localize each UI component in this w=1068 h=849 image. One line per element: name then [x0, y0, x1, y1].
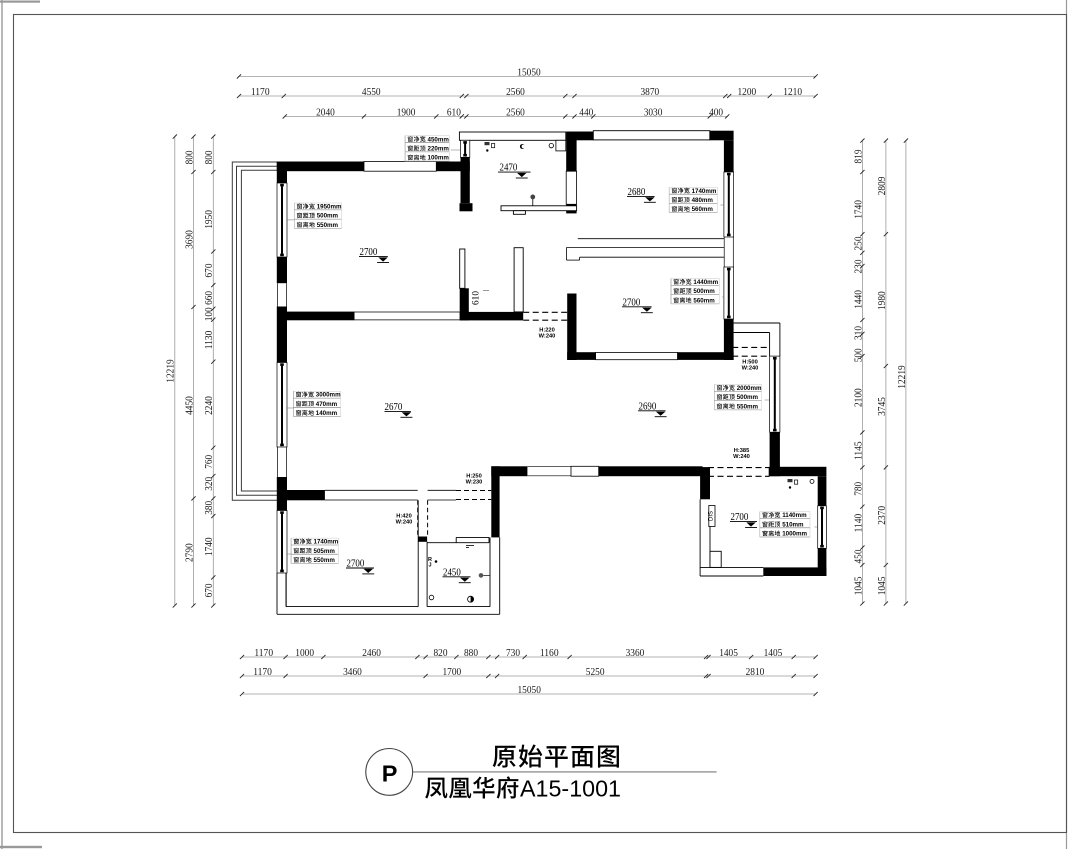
svg-text:4450: 4450 [184, 396, 195, 415]
svg-text:470mm: 470mm [316, 401, 338, 408]
svg-text:1440mm: 1440mm [693, 279, 718, 286]
svg-text:1900: 1900 [397, 107, 416, 118]
svg-text:1170: 1170 [254, 648, 273, 659]
svg-text:310: 310 [853, 326, 864, 340]
svg-text:480mm: 480mm [692, 197, 714, 204]
svg-text:230: 230 [853, 260, 864, 274]
svg-text:550mm: 550mm [314, 557, 336, 564]
svg-text:1405: 1405 [764, 648, 783, 659]
svg-text:670: 670 [204, 583, 215, 597]
svg-text:12219: 12219 [897, 365, 908, 388]
svg-text:800: 800 [184, 150, 195, 164]
svg-text:100: 100 [204, 307, 215, 321]
svg-text:660: 660 [204, 291, 215, 305]
svg-text:W:240: W:240 [742, 366, 759, 372]
svg-text:730: 730 [506, 648, 520, 659]
svg-text:3745: 3745 [877, 397, 888, 416]
svg-text:2810: 2810 [746, 667, 765, 678]
svg-text:670: 670 [204, 264, 215, 278]
svg-text:1950mm: 1950mm [317, 204, 342, 211]
svg-text:510mm: 510mm [782, 521, 804, 528]
svg-text:1740: 1740 [853, 200, 864, 219]
svg-text:1045: 1045 [853, 577, 864, 596]
svg-text:1980: 1980 [877, 291, 888, 310]
svg-text:P: P [382, 761, 398, 787]
svg-text:15050: 15050 [518, 685, 541, 696]
svg-text:12219: 12219 [166, 359, 177, 382]
svg-text:380: 380 [204, 501, 215, 515]
svg-text:320: 320 [204, 477, 215, 491]
svg-text:H:500: H:500 [742, 360, 758, 366]
svg-text:3360: 3360 [626, 648, 645, 659]
svg-text:140mm: 140mm [316, 410, 338, 417]
svg-text:500mm: 500mm [317, 213, 339, 220]
svg-text:500: 500 [853, 348, 864, 362]
svg-text:H:250: H:250 [466, 474, 482, 480]
svg-text:A15-1001: A15-1001 [520, 776, 621, 802]
svg-text:2790: 2790 [184, 543, 195, 562]
svg-text:500mm: 500mm [693, 288, 715, 295]
svg-text:2240: 2240 [204, 396, 215, 415]
svg-text:2560: 2560 [506, 87, 525, 98]
svg-text:W:240: W:240 [539, 334, 556, 340]
svg-text:1140: 1140 [853, 514, 864, 533]
svg-text:610: 610 [447, 107, 461, 118]
svg-text:1405: 1405 [719, 648, 738, 659]
svg-text:800: 800 [204, 150, 215, 164]
svg-text:550mm: 550mm [737, 403, 759, 410]
svg-text:1130: 1130 [204, 331, 215, 350]
svg-text:2000mm: 2000mm [737, 385, 762, 392]
svg-text:819: 819 [853, 150, 864, 164]
svg-text:220mm: 220mm [428, 146, 450, 153]
svg-text:610: 610 [472, 291, 482, 305]
svg-text:4550: 4550 [362, 87, 381, 98]
svg-text:2460: 2460 [362, 648, 381, 659]
svg-text:1740mm: 1740mm [314, 539, 339, 546]
svg-text:2100: 2100 [853, 388, 864, 407]
svg-text:3000mm: 3000mm [316, 392, 341, 399]
svg-text:2040: 2040 [316, 107, 335, 118]
svg-text:400: 400 [709, 107, 723, 118]
svg-text:1740mm: 1740mm [692, 188, 717, 195]
svg-text:500mm: 500mm [737, 394, 759, 401]
svg-text:1170: 1170 [251, 87, 270, 98]
svg-text:1440: 1440 [853, 290, 864, 309]
svg-text:1170: 1170 [253, 667, 272, 678]
svg-text:1045: 1045 [877, 577, 888, 596]
svg-text:5250: 5250 [586, 667, 605, 678]
svg-text:1000: 1000 [295, 648, 314, 659]
svg-text:H:385: H:385 [734, 448, 750, 454]
svg-text:1000mm: 1000mm [782, 531, 807, 538]
svg-text:880: 880 [464, 648, 478, 659]
svg-text:450: 450 [853, 550, 864, 564]
svg-text:1200: 1200 [738, 87, 757, 98]
svg-text:2560: 2560 [506, 107, 525, 118]
svg-text:1950: 1950 [204, 210, 215, 229]
svg-text:1160: 1160 [540, 648, 559, 659]
svg-text:1700: 1700 [443, 667, 462, 678]
svg-text:3870: 3870 [641, 87, 660, 98]
svg-text:H:220: H:220 [539, 328, 555, 334]
svg-text:760: 760 [204, 455, 215, 469]
svg-text:W:240: W:240 [396, 520, 413, 526]
svg-text:820: 820 [434, 648, 448, 659]
svg-text:3460: 3460 [343, 667, 362, 678]
svg-text:J: J [429, 563, 432, 569]
svg-text:3030: 3030 [644, 107, 663, 118]
svg-text:780: 780 [853, 482, 864, 496]
svg-text:2809: 2809 [877, 177, 888, 196]
svg-text:560mm: 560mm [693, 297, 715, 304]
svg-text:505mm: 505mm [314, 548, 336, 555]
svg-text:1210: 1210 [783, 87, 802, 98]
svg-text:1140mm: 1140mm [782, 512, 807, 519]
svg-text:1740: 1740 [204, 537, 215, 556]
svg-text:DIS: DIS [708, 511, 714, 521]
svg-text:100mm: 100mm [428, 155, 450, 162]
svg-text:2370: 2370 [877, 506, 888, 525]
svg-text:550mm: 550mm [317, 222, 339, 229]
svg-text:W:230: W:230 [466, 480, 483, 486]
svg-text:15050: 15050 [517, 67, 540, 78]
svg-text:560mm: 560mm [692, 206, 714, 213]
svg-text:W:240: W:240 [733, 454, 750, 460]
svg-text:H:420: H:420 [396, 514, 412, 520]
svg-text:450mm: 450mm [428, 136, 450, 143]
svg-text:250: 250 [853, 237, 864, 251]
svg-text:3690: 3690 [184, 230, 195, 249]
svg-text:440: 440 [579, 107, 593, 118]
svg-text:1145: 1145 [853, 441, 864, 460]
